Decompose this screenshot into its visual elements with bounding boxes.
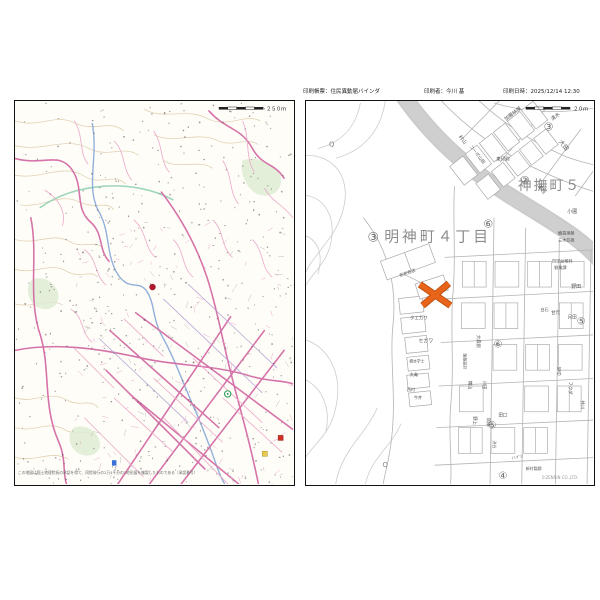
block-number: ③ [368, 231, 380, 246]
building-label: 白石 [540, 306, 548, 312]
building-label: 三木亞雄 [558, 237, 575, 243]
building-label: フクダ [567, 381, 574, 395]
building-label: 岡本 [485, 418, 492, 427]
building-label: 橋本学士 [409, 358, 424, 363]
q-symbol: Q [382, 461, 388, 469]
location-marker[interactable] [150, 284, 156, 290]
block-number: ② [520, 174, 530, 187]
detail-map-page: 明神町４丁目神撫町５ ③③②⑥⑥⑤⑤④ 加藤納屋村山コーポ山田東印刷清水大田濱西… [305, 100, 595, 486]
building-label: 野上 [471, 416, 478, 425]
building-label: 劉業課 [554, 264, 566, 270]
station-icon [112, 460, 116, 465]
building-label: 川田 [481, 381, 487, 390]
building-label: 新村製鋼 [526, 466, 542, 471]
building-label: 西村 [407, 386, 415, 392]
building-label: 月田 [568, 315, 577, 321]
yellow-poi-icon [262, 451, 267, 456]
building-label: 大森創 [475, 335, 482, 349]
building-label: SMD [556, 367, 561, 376]
block-number: ⑤ [577, 317, 586, 328]
detail-map[interactable]: 明神町４丁目神撫町５ ③③②⑥⑥⑤⑤④ 加藤納屋村山コーポ山田東印刷清水大田濱西… [306, 101, 593, 484]
building-label: 横山 [466, 381, 473, 390]
building-label: 東印刷 [496, 155, 510, 162]
block-number: ⑥ [494, 339, 503, 350]
scale-label: ２０ｍ [573, 106, 588, 112]
school-icon [225, 391, 231, 397]
print-preview-canvas: 印刷帳票：住民異動届バインダ 印刷者：今川 基 印刷日時：2025/12/14 … [0, 0, 600, 600]
q-symbol: Q [329, 141, 335, 149]
building-label: 甘元 [551, 309, 560, 316]
building-label: 野田 [571, 283, 581, 290]
map-copyright: ©ZENRIN CO.,LTD. [542, 475, 579, 480]
wide-area-map[interactable]: ２５０ｍ この地図は国土地理院長の承認を得て、同院発行の2万5千分の1地形図を複… [15, 101, 293, 484]
building-label: 輪島理髪 [558, 230, 575, 236]
building-label: 田口 [499, 413, 508, 419]
map-attribution: この地図は国土地理院長の承認を得て、同院発行の2万5千分の1地形図を複製したもの… [18, 470, 197, 475]
building-label: 四球幼稚科 [552, 257, 573, 263]
print-datetime-label: 印刷日時：2025/12/14 12:30 [503, 87, 580, 95]
red-poi-icon [278, 435, 283, 440]
block-number: ④ [499, 471, 508, 482]
building-label: 丸亀 [410, 371, 418, 377]
scale-label: ２５０ｍ [266, 106, 286, 112]
building-label: 小圃 [567, 208, 577, 215]
wide-area-map-page: ２５０ｍ この地図は国土地理院長の承認を得て、同院発行の2万5千分の1地形図を複… [14, 100, 295, 486]
building-label: 今井 [414, 394, 422, 400]
print-form-label: 印刷帳票：住民異動届バインダ [303, 87, 380, 95]
print-user-label: 印刷者：今川 基 [424, 87, 464, 95]
block-number: ③ [544, 121, 554, 134]
building-label: 井川 [579, 400, 586, 409]
building-label: セガワ [418, 337, 433, 344]
building-label: 渋谷 [492, 440, 497, 448]
district-label: 明神町４丁目 [384, 229, 491, 246]
building-label: タエカワ [410, 315, 428, 322]
building-label: 尾藤設計 [462, 353, 467, 369]
block-number: ⑥ [483, 218, 493, 231]
